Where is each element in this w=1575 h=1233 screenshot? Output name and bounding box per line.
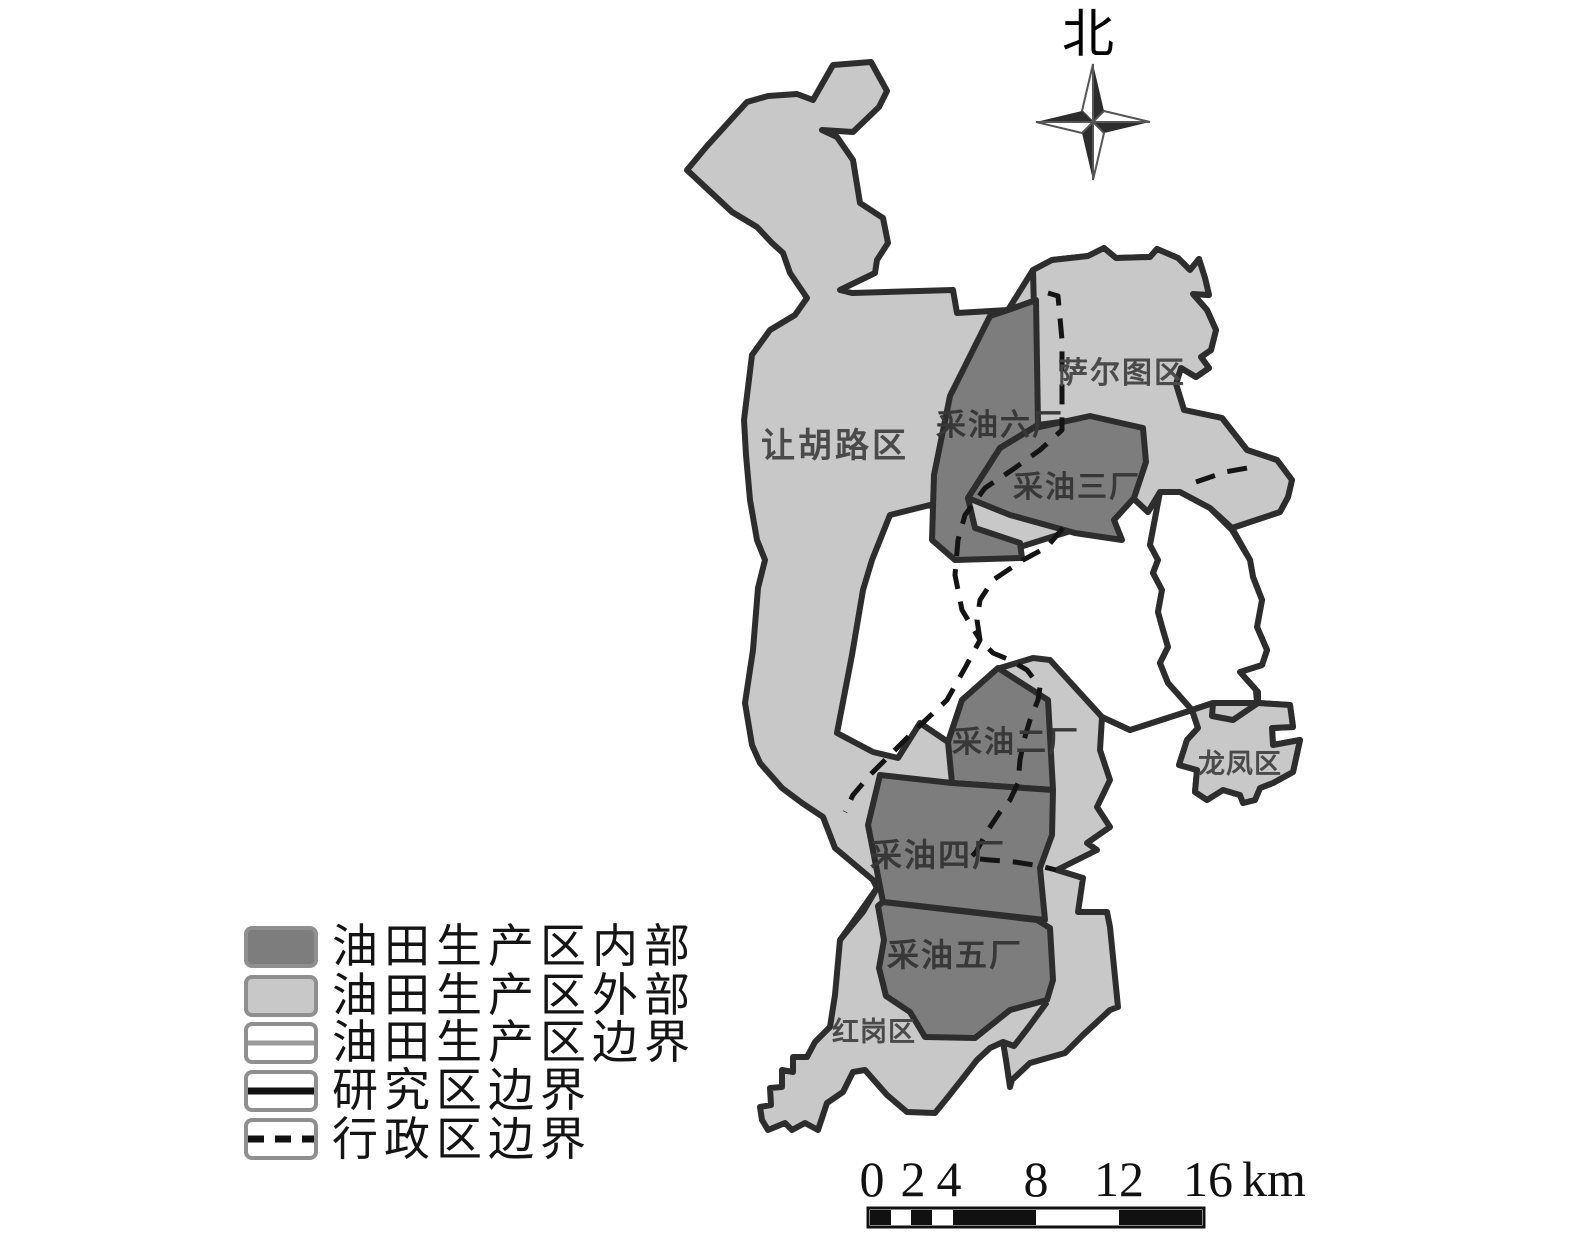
legend-swatch-production-boundary <box>246 1024 316 1062</box>
scale-segment <box>1119 1210 1202 1225</box>
legend-swatch-admin-boundary <box>246 1120 316 1158</box>
label-ranghulu: 让胡路区 <box>761 427 909 465</box>
scale-unit: km <box>1242 1151 1306 1207</box>
scale-segment <box>953 1210 1036 1225</box>
legend-item-label: 油田生产区内部 <box>332 921 696 972</box>
scale-segment <box>870 1210 891 1225</box>
label-plant3: 采油三厂 <box>1013 471 1141 504</box>
scale-tick: 0 <box>860 1151 885 1207</box>
scale-bar: 0 2 4 8 12 16 km <box>860 1151 1307 1227</box>
label-saertu: 萨尔图区 <box>1058 357 1186 390</box>
north-label: 北 <box>1062 7 1114 64</box>
scale-tick: 4 <box>937 1151 962 1207</box>
scale-tick: 8 <box>1024 1151 1049 1207</box>
map-legend: 油田生产区内部 油田生产区外部 油田生产区边界 研究区边界 行政区边界 <box>246 921 696 1165</box>
legend-swatch-production-exterior <box>246 977 316 1015</box>
legend-item-label: 油田生产区边界 <box>332 1017 696 1068</box>
compass-star-icon <box>1036 64 1150 180</box>
legend-swatch-production-interior <box>246 928 316 966</box>
legend-item-label: 油田生产区外部 <box>332 970 696 1021</box>
label-plant4: 采油四厂 <box>870 837 1006 873</box>
scale-segment <box>911 1210 932 1225</box>
oilfield-district-map: 让胡路区 萨尔图区 采油六厂 采油三厂 采油二厂 采油四厂 采油五厂 龙凤区 红… <box>0 0 1575 1233</box>
scale-tick: 12 <box>1094 1151 1144 1207</box>
legend-item-label: 研究区边界 <box>332 1065 592 1116</box>
label-plant6: 采油六厂 <box>936 409 1064 442</box>
label-plant5: 采油五厂 <box>887 937 1023 973</box>
legend-item-label: 行政区边界 <box>332 1114 592 1165</box>
scale-tick: 2 <box>901 1151 926 1207</box>
label-honggang: 红岗区 <box>832 1016 916 1047</box>
legend-swatch-study-boundary <box>246 1072 316 1110</box>
label-plant2: 采油二厂 <box>952 726 1080 759</box>
scale-tick: 16 <box>1183 1151 1233 1207</box>
map-figure: 让胡路区 萨尔图区 采油六厂 采油三厂 采油二厂 采油四厂 采油五厂 龙凤区 红… <box>0 0 1575 1233</box>
label-longfeng: 龙凤区 <box>1198 749 1282 779</box>
